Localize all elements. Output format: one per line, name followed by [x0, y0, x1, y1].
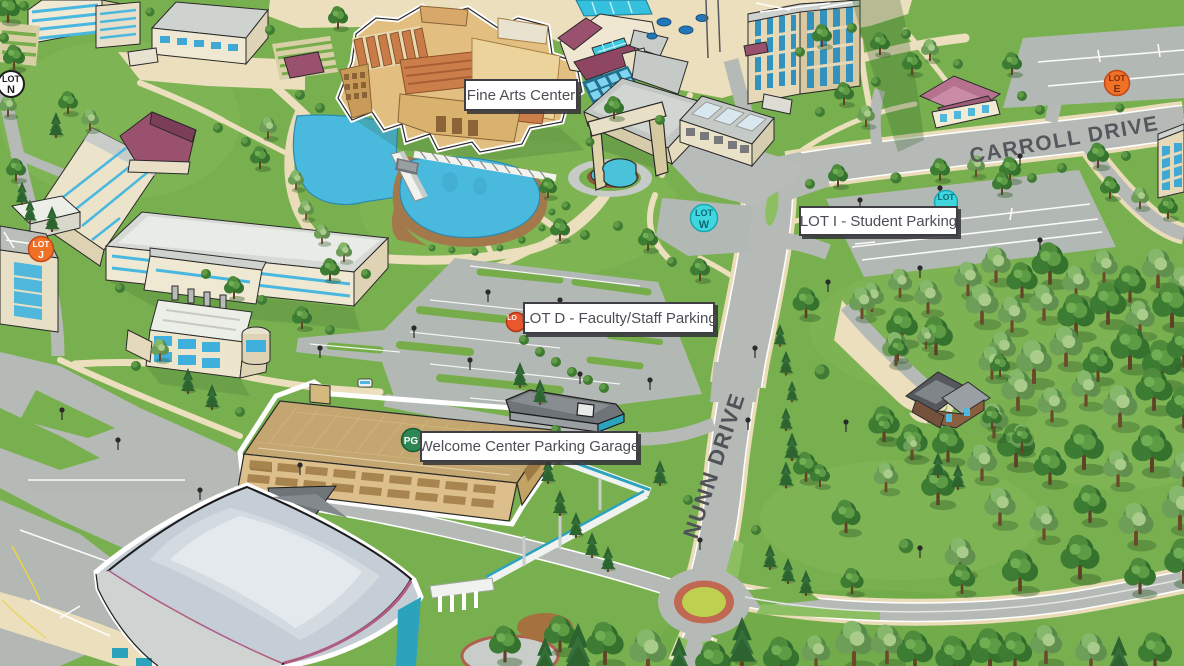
svg-text:PG: PG: [404, 436, 419, 447]
svg-text:W: W: [699, 219, 710, 231]
svg-text:LOT: LOT: [2, 74, 20, 84]
svg-text:LOT: LOT: [695, 208, 713, 218]
svg-text:LOT: LOT: [1109, 73, 1127, 83]
svg-text:E: E: [1113, 83, 1120, 95]
svg-text:N: N: [7, 84, 15, 96]
svg-text:LOT: LOT: [33, 239, 51, 249]
svg-text:J: J: [38, 249, 44, 261]
svg-text:LO: LO: [507, 315, 517, 322]
svg-text:LOT: LOT: [938, 192, 956, 202]
